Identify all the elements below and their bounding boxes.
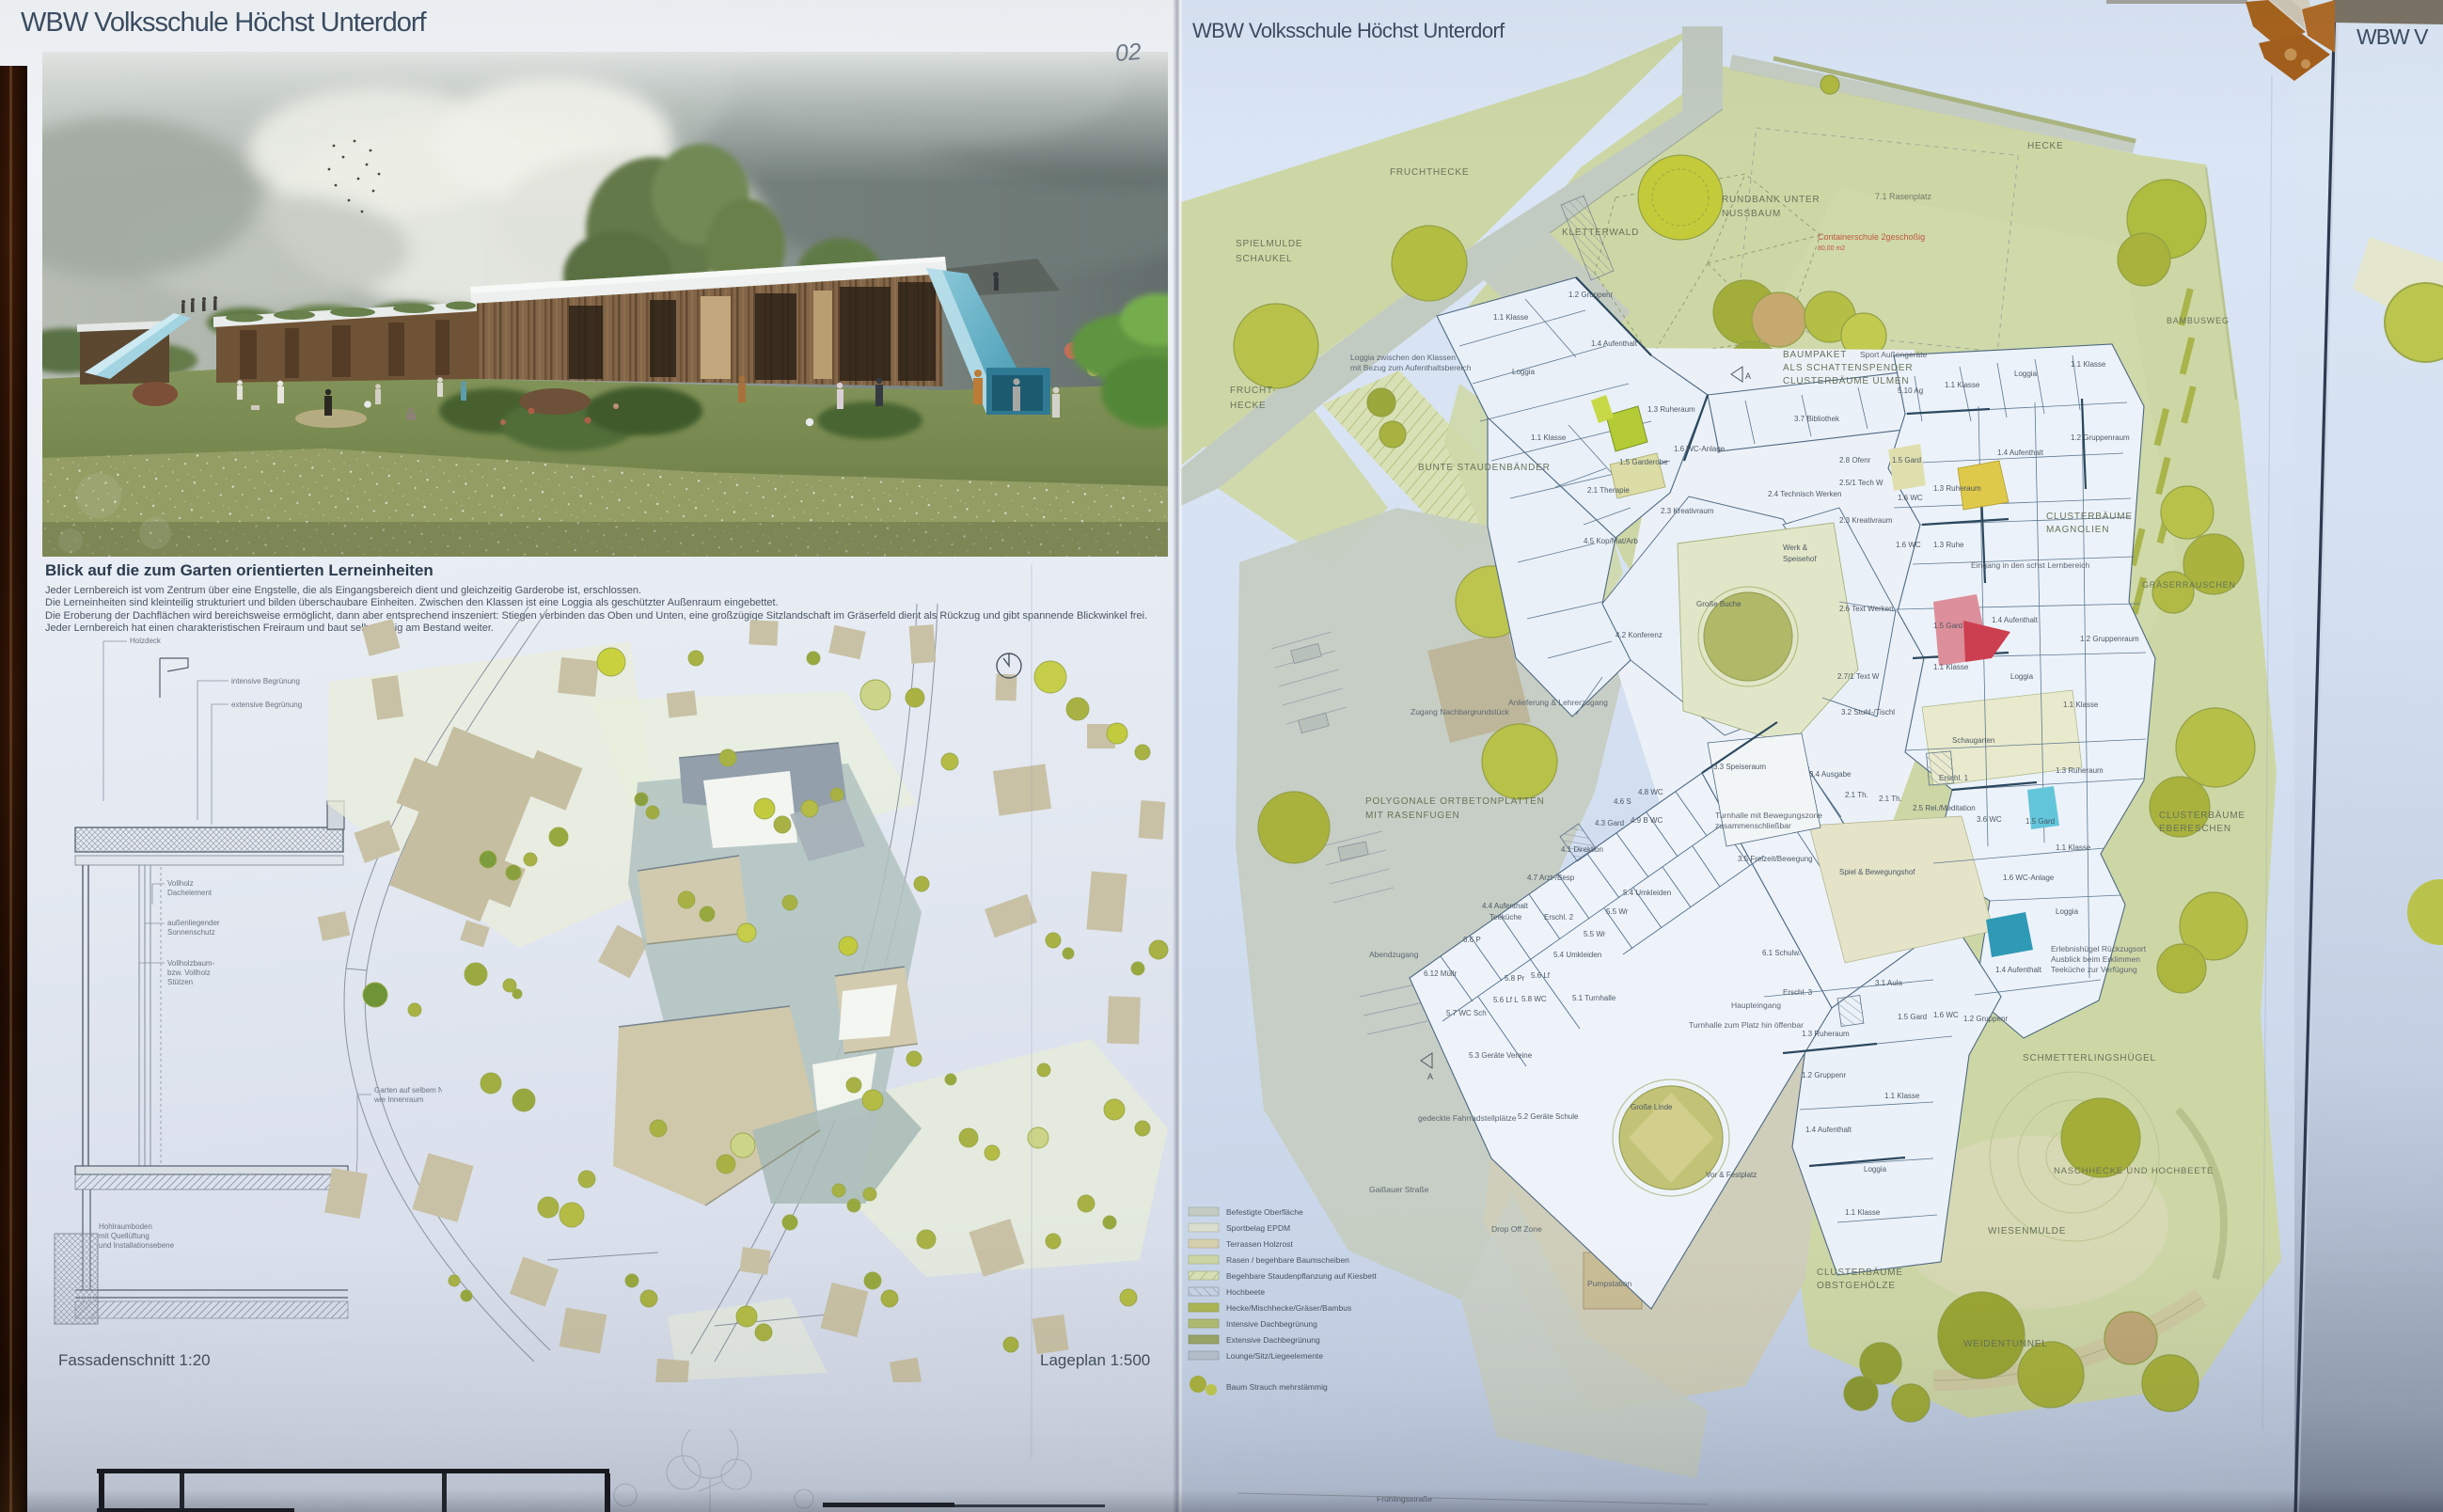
svg-text:4.2 Konferenz: 4.2 Konferenz [1616,631,1663,639]
svg-text:4.9 B WC: 4.9 B WC [1631,816,1663,825]
svg-text:2.5/1 Tech W: 2.5/1 Tech W [1839,479,1883,487]
svg-text:Vollholz: Vollholz [167,879,194,888]
svg-text:Teeküche zur Verfügung: Teeküche zur Verfügung [2051,965,2137,974]
svg-text:1.3 Ruheraum: 1.3 Ruheraum [1802,1030,1850,1038]
svg-text:HECKE: HECKE [1230,401,1266,411]
svg-text:Loggia zwischen den Klassen: Loggia zwischen den Klassen [1350,353,1456,362]
svg-text:SPIELMULDE: SPIELMULDE [1236,239,1302,249]
svg-text:MAGNOLIEN: MAGNOLIEN [2046,525,2109,535]
svg-text:1.2 Gruppenraum: 1.2 Gruppenraum [2071,433,2130,442]
svg-text:Erschl. 1: Erschl. 1 [1939,774,1969,782]
svg-text:BAMBUSWEG: BAMBUSWEG [2167,316,2230,325]
svg-text:1.4 Aufenthalt: 1.4 Aufenthalt [1805,1126,1852,1134]
svg-text:1.2 Gruppenr: 1.2 Gruppenr [1568,291,1613,299]
svg-text:gedeckte Fahrradstellplätze: gedeckte Fahrradstellplätze [1418,1113,1517,1123]
svg-text:Turnhalle zum Platz hin öffenb: Turnhalle zum Platz hin öffenbar [1689,1020,1804,1030]
svg-text:5.1 Turnhalle: 5.1 Turnhalle [1572,994,1616,1002]
svg-text:1.5 Gard: 1.5 Gard [1933,622,1962,630]
svg-text:4.7 Arzt-/Besp: 4.7 Arzt-/Besp [1527,874,1575,882]
svg-text:Eingang in den schst Lernberei: Eingang in den schst Lernbereich [1971,560,2089,570]
svg-text:5.2 Geräte Schule: 5.2 Geräte Schule [1518,1112,1579,1121]
svg-text:1.5 Gard: 1.5 Gard [1898,1013,1927,1021]
svg-text:RUNDBANK UNTER: RUNDBANK UNTER [1722,195,1820,205]
svg-text:WIESENMULDE: WIESENMULDE [1988,1226,2066,1236]
svg-text:1.3 Ruheraum: 1.3 Ruheraum [1933,484,1981,493]
svg-text:GRÄSERRAUSCHEN: GRÄSERRAUSCHEN [2142,580,2236,590]
svg-text:2.1 Therapie: 2.1 Therapie [1587,486,1630,495]
svg-text:5.5 Wr: 5.5 Wr [1584,930,1606,938]
svg-text:2.4 Technisch Werken: 2.4 Technisch Werken [1768,490,1841,498]
svg-text:CLUSTERBÄUME: CLUSTERBÄUME [2159,810,2246,821]
svg-text:Spiel & Bewegungshof: Spiel & Bewegungshof [1839,868,1915,876]
svg-text:Loggia: Loggia [1512,368,1536,376]
svg-text:1.2 Gruppenr: 1.2 Gruppenr [1802,1071,1846,1079]
svg-text:3.7 Bibliothek: 3.7 Bibliothek [1794,415,1840,423]
svg-text:Erlebnishügel Rückzugsort: Erlebnishügel Rückzugsort [2051,944,2147,953]
svg-text:Befestigte Oberfläche: Befestigte Oberfläche [1226,1207,1303,1217]
svg-text:MIT RASENFUGEN: MIT RASENFUGEN [1365,811,1459,821]
svg-text:5.3 Geräte Vereine: 5.3 Geräte Vereine [1469,1051,1533,1060]
svg-text:1.3 Ruheraum: 1.3 Ruheraum [2056,766,2104,775]
svg-text:1.4 Aufenthalt: 1.4 Aufenthalt [1997,449,2044,457]
svg-text:NUSSBAUM: NUSSBAUM [1722,209,1781,219]
svg-text:Turnhalle mit Bewegungszone: Turnhalle mit Bewegungszone [1715,811,1822,820]
svg-text:1.6 WC: 1.6 WC [1898,494,1923,502]
svg-text:1.3 Ruheraum: 1.3 Ruheraum [1647,405,1695,414]
svg-text:1.6 WC: 1.6 WC [1896,541,1921,549]
svg-text:5.5 Wr: 5.5 Wr [1606,907,1629,916]
svg-text:Sportbelag EPDM: Sportbelag EPDM [1226,1223,1290,1233]
svg-text:Erschl. 3: Erschl. 3 [1783,988,1813,997]
svg-text:Erschl. 2: Erschl. 2 [1544,913,1574,921]
svg-text:Hecke/Mischhecke/Gräser/Bambus: Hecke/Mischhecke/Gräser/Bambus [1226,1303,1351,1313]
svg-text:bzw. Vollholz: bzw. Vollholz [167,969,211,977]
svg-text:Baum Strauch mehrstämmig: Baum Strauch mehrstämmig [1226,1382,1328,1392]
svg-text:5.4 Umkleiden: 5.4 Umkleiden [1623,889,1671,897]
svg-text:5.6 Lf L: 5.6 Lf L [1493,996,1519,1004]
svg-text:HECKE: HECKE [2027,141,2063,151]
svg-text:4.6 S: 4.6 S [1614,797,1631,806]
svg-text:Rasen / begehbare Baumscheiben: Rasen / begehbare Baumscheiben [1226,1255,1349,1265]
svg-text:1.1 Klasse: 1.1 Klasse [1945,381,1980,389]
svg-text:1.1 Klasse: 1.1 Klasse [1845,1208,1881,1217]
svg-text:1.6 WC-Anlage: 1.6 WC-Anlage [1674,445,1726,453]
svg-text:ALS SCHATTENSPENDER: ALS SCHATTENSPENDER [1783,363,1913,373]
svg-text:2.3 Kreativraum: 2.3 Kreativraum [1839,516,1893,525]
svg-text:und Installationsebene: und Installationsebene [99,1241,175,1250]
svg-text:5.7 WC Sch: 5.7 WC Sch [1446,1009,1487,1017]
svg-text:1.1 Klasse: 1.1 Klasse [1884,1092,1920,1100]
svg-text:Begehbare Staudenpflanzung auf: Begehbare Staudenpflanzung auf Kiesbett [1226,1271,1377,1281]
svg-text:7.1 Rasenplatz: 7.1 Rasenplatz [1875,192,1932,201]
svg-text:6.1 Schulw.: 6.1 Schulw. [1762,949,1801,957]
svg-text:Teeküche: Teeküche [1489,913,1522,921]
svg-text:Anlieferung & Lehrerzugang: Anlieferung & Lehrerzugang [1508,698,1608,707]
svg-text:NASCHHECKE UND HOCHBEETE: NASCHHECKE UND HOCHBEETE [2054,1166,2214,1176]
svg-text:Vor & Festplatz: Vor & Festplatz [1706,1171,1757,1179]
svg-text:FRUCHT-: FRUCHT- [1230,386,1276,396]
svg-text:Lounge/Sitz/Liegeelemente: Lounge/Sitz/Liegeelemente [1226,1351,1323,1361]
svg-text:BAUMPAKET: BAUMPAKET [1783,350,1847,360]
svg-text:Ausblick beim Erklimmen: Ausblick beim Erklimmen [2051,954,2140,964]
svg-text:Drop Off Zone: Drop Off Zone [1491,1224,1542,1234]
svg-text:A: A [1427,1072,1433,1081]
svg-text:4.8 WC: 4.8 WC [1638,788,1663,796]
svg-text:5.8 WC: 5.8 WC [1521,995,1547,1003]
svg-text:1.4 Aufenthalt: 1.4 Aufenthalt [1591,339,1638,348]
svg-text:Speisehof: Speisehof [1783,555,1817,563]
svg-text:3.1 Aula: 3.1 Aula [1875,979,1902,987]
svg-text:1.1 Klasse: 1.1 Klasse [2071,360,2106,369]
svg-text:1.6 WC: 1.6 WC [1933,1011,1959,1019]
svg-text:Loggia: Loggia [2056,907,2079,916]
svg-text:3.4 Ausgabe: 3.4 Ausgabe [1809,770,1852,779]
svg-text:Hohlraumboden: Hohlraumboden [99,1222,152,1231]
svg-text:1.3 Ruhe: 1.3 Ruhe [1933,541,1964,549]
svg-text:Hochbeete: Hochbeete [1226,1287,1265,1297]
svg-text:POLYGONALE ORTBETONPLATTEN: POLYGONALE ORTBETONPLATTEN [1365,796,1545,807]
svg-text:6.6 P: 6.6 P [1463,936,1481,944]
svg-text:Intensive Dachbegrünung: Intensive Dachbegrünung [1226,1319,1317,1329]
svg-text:4.3 Gard: 4.3 Gard [1595,819,1624,827]
svg-text:Gaißauer Straße: Gaißauer Straße [1369,1185,1429,1194]
svg-text:Dachelement: Dachelement [167,889,213,897]
svg-text:Große Linde: Große Linde [1631,1103,1673,1111]
svg-text:Haupteingang: Haupteingang [1731,1000,1781,1010]
svg-text:WEIDENTUNNEL: WEIDENTUNNEL [1963,1339,2048,1349]
svg-text:Sonnenschutz: Sonnenschutz [167,928,215,937]
svg-text:1.5 Garderobe: 1.5 Garderobe [1619,458,1668,466]
svg-text:FRUCHTHECKE: FRUCHTHECKE [1390,167,1469,178]
svg-text:1.1 Klasse: 1.1 Klasse [1933,663,1969,671]
svg-text:5.10 Ag: 5.10 Ag [1898,386,1923,395]
svg-text:OBSTGEHÖLZE: OBSTGEHÖLZE [1817,1280,1896,1291]
svg-text:Pumpstation: Pumpstation [1587,1279,1632,1288]
svg-text:Terrassen Holzrost: Terrassen Holzrost [1226,1239,1293,1249]
svg-text:zusammenschließbar: zusammenschließbar [1715,821,1791,830]
svg-text:Abendzugang: Abendzugang [1369,950,1419,959]
svg-text:mit Quellüftung: mit Quellüftung [99,1232,150,1240]
svg-text:1.4 Aufenthalt: 1.4 Aufenthalt [1995,966,2042,974]
svg-text:Loggia: Loggia [1864,1165,1887,1173]
svg-text:A: A [1745,371,1751,381]
svg-text:Werk &: Werk & [1783,543,1808,552]
svg-text:Extensive Dachbegrünung: Extensive Dachbegrünung [1226,1335,1320,1345]
svg-text:Holzdeck: Holzdeck [130,637,162,645]
svg-text:5.6 Lf: 5.6 Lf [1531,971,1551,980]
svg-text:Containerschule 2geschoßig: Containerschule 2geschoßig [1818,232,1925,242]
svg-text:2.7/1 Text W: 2.7/1 Text W [1837,672,1880,681]
svg-text:KLETTERWALD: KLETTERWALD [1562,228,1639,238]
svg-text:Sport Außengeräte: Sport Außengeräte [1860,350,1928,359]
svg-text:1.1 Klasse: 1.1 Klasse [1531,433,1567,442]
svg-text:3.5 Freizeit/Bewegung: 3.5 Freizeit/Bewegung [1738,855,1813,863]
svg-text:5.8 Pr: 5.8 Pr [1505,974,1525,983]
svg-text:CLUSTERBÄUME: CLUSTERBÄUME [1817,1267,1903,1278]
svg-text:4.1 Direktion: 4.1 Direktion [1561,845,1603,854]
svg-text:Stützen: Stützen [167,978,193,986]
svg-text:Loggia: Loggia [2014,370,2038,378]
svg-text:Schaugarten: Schaugarten [1952,736,1994,745]
svg-text:1.5 Gard: 1.5 Gard [2025,817,2055,826]
svg-text:2.3 Kreativraum: 2.3 Kreativraum [1661,507,1714,515]
svg-text:2.5 Rel./Meditation: 2.5 Rel./Meditation [1913,804,1976,812]
svg-text:4.4 Aufenthalt: 4.4 Aufenthalt [1482,902,1529,910]
svg-text:2.6 Text Werken: 2.6 Text Werken [1839,605,1894,613]
svg-text:3.6 WC: 3.6 WC [1977,815,2002,824]
svg-text:2.8 Ofenr: 2.8 Ofenr [1839,456,1871,465]
svg-text:1.1 Klasse: 1.1 Klasse [2056,843,2091,852]
svg-text:3.3 Speiseraum: 3.3 Speiseraum [1713,763,1766,771]
svg-text:5.4 Umkleiden: 5.4 Umkleiden [1553,951,1601,959]
svg-text:6.12 Müllr: 6.12 Müllr [1424,969,1457,978]
svg-text:1.2 Gruppenr: 1.2 Gruppenr [1963,1015,2008,1023]
svg-text:außenliegender: außenliegender [167,919,220,927]
svg-text:4.5 Kop/Mat/Arb: 4.5 Kop/Mat/Arb [1584,537,1638,545]
svg-text:3.2 Stuhl-/Tischl: 3.2 Stuhl-/Tischl [1841,708,1895,717]
svg-text:Zugang Nachbargrundstück: Zugang Nachbargrundstück [1411,707,1510,717]
svg-text:SCHMETTERLINGSHÜGEL: SCHMETTERLINGSHÜGEL [2023,1052,2156,1063]
svg-text:Große Buche: Große Buche [1696,600,1742,608]
svg-text:EBERESCHEN: EBERESCHEN [2159,824,2231,834]
svg-text:CLUSTERBÄUME: CLUSTERBÄUME [2046,511,2133,522]
svg-text:1.4 Aufenthalt: 1.4 Aufenthalt [1992,616,2039,624]
svg-text:Loggia: Loggia [2010,672,2034,681]
svg-text:1.5 Gard: 1.5 Gard [1892,456,1921,465]
svg-text:2.1 Th.: 2.1 Th. [1879,795,1902,803]
svg-text:SCHAUKEL: SCHAUKEL [1236,254,1292,264]
svg-text:80,00 m2: 80,00 m2 [1818,245,1845,252]
svg-text:mit Bezug zum Aufenthaltsberei: mit Bezug zum Aufenthaltsbereich [1350,363,1472,372]
svg-text:CLUSTERBÄUME ULMEN: CLUSTERBÄUME ULMEN [1783,375,1909,386]
svg-text:Vollholzbaum-: Vollholzbaum- [167,959,215,968]
svg-text:1.2 Gruppenraum: 1.2 Gruppenraum [2080,635,2139,643]
svg-text:1.6 WC-Anlage: 1.6 WC-Anlage [2003,874,2055,882]
svg-text:2.1 Th.: 2.1 Th. [1845,791,1868,799]
svg-text:1.1 Klasse: 1.1 Klasse [2063,701,2099,709]
svg-text:1.1 Klasse: 1.1 Klasse [1493,313,1529,322]
svg-text:BUNTE STAUDENBÄNDER: BUNTE STAUDENBÄNDER [1418,462,1551,473]
